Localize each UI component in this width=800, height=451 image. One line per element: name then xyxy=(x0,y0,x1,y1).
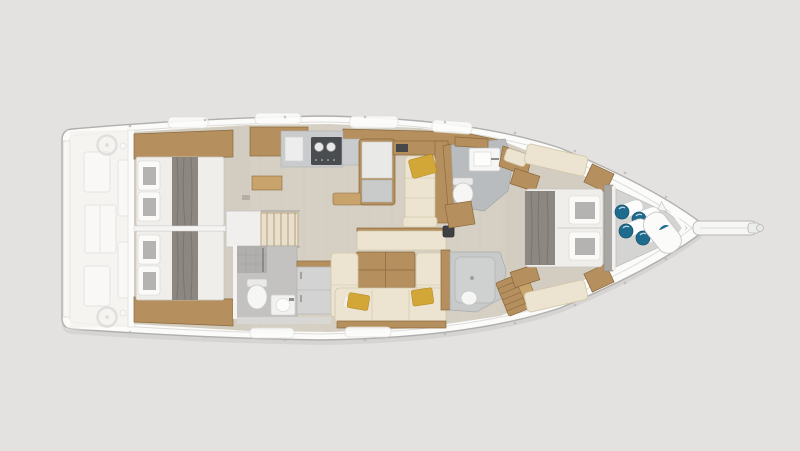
blanket-runner xyxy=(172,231,198,300)
pillow-center xyxy=(575,238,595,255)
yellow-cushion xyxy=(411,288,434,307)
island-double-berth xyxy=(525,189,603,267)
bench-seat xyxy=(357,231,446,250)
deck-hatch xyxy=(255,113,301,124)
stove xyxy=(311,137,342,165)
chaise-longue xyxy=(403,154,437,227)
aft-cabin-starboard xyxy=(134,226,233,326)
deck-hatch xyxy=(345,327,391,337)
washbasin xyxy=(276,299,290,312)
double-berth xyxy=(136,231,224,300)
pillow-center xyxy=(143,167,156,185)
pillow-center xyxy=(575,202,595,219)
shower-seat xyxy=(461,291,477,305)
deck-hatch xyxy=(432,120,473,135)
washbasin xyxy=(474,152,491,166)
hull-shelf xyxy=(134,297,233,326)
burner xyxy=(327,143,336,152)
cabinet-handle xyxy=(300,272,302,279)
latch xyxy=(242,195,250,200)
island-worktop xyxy=(362,142,392,178)
plinth xyxy=(237,317,331,324)
bowsprit xyxy=(693,221,764,235)
pillow-center xyxy=(143,241,156,259)
bow-bulkhead xyxy=(604,185,613,271)
counter-appliance xyxy=(396,144,408,152)
deck-hatch xyxy=(168,117,208,128)
blanket-runner xyxy=(525,191,555,265)
cabinet-wood-top xyxy=(297,261,331,267)
hull-shelf xyxy=(134,130,233,159)
door-post xyxy=(441,250,450,310)
companionway-stairs xyxy=(261,211,300,247)
wood-shelf xyxy=(455,137,488,148)
cabin-divider-wall xyxy=(134,226,226,231)
deck-hatch xyxy=(250,328,294,338)
cockpit xyxy=(63,130,134,330)
toilet xyxy=(247,285,267,309)
bowsprit-tip xyxy=(757,225,764,232)
nav-locker xyxy=(252,176,282,190)
deck-hatch xyxy=(350,116,398,128)
pillow-center xyxy=(143,198,156,216)
faucet xyxy=(289,298,294,301)
wood-step xyxy=(333,193,361,205)
island-counter xyxy=(359,139,395,205)
blanket-runner xyxy=(172,157,198,226)
wood-bench xyxy=(445,201,475,228)
chaise-armrest xyxy=(403,217,437,227)
island-gray-panel xyxy=(362,180,392,202)
aft-cabin-port xyxy=(134,130,233,226)
refrigerator-cabinet xyxy=(297,267,331,314)
double-berth xyxy=(136,157,224,226)
cockpit-wash xyxy=(66,130,134,330)
engine-box xyxy=(226,211,261,247)
cabinet-handle xyxy=(300,295,302,302)
dinette-table xyxy=(356,252,415,288)
yacht-floorplan-page: Sailing yacht interior layout plan — top… xyxy=(0,0,800,451)
burner xyxy=(315,143,324,152)
bulkhead-wall xyxy=(612,186,616,270)
yacht-floorplan: Sailing yacht interior layout plan — top… xyxy=(0,0,800,451)
galley-sink xyxy=(285,137,303,161)
pillow-center xyxy=(143,272,156,290)
drain xyxy=(470,276,474,280)
head-wall xyxy=(233,245,237,319)
